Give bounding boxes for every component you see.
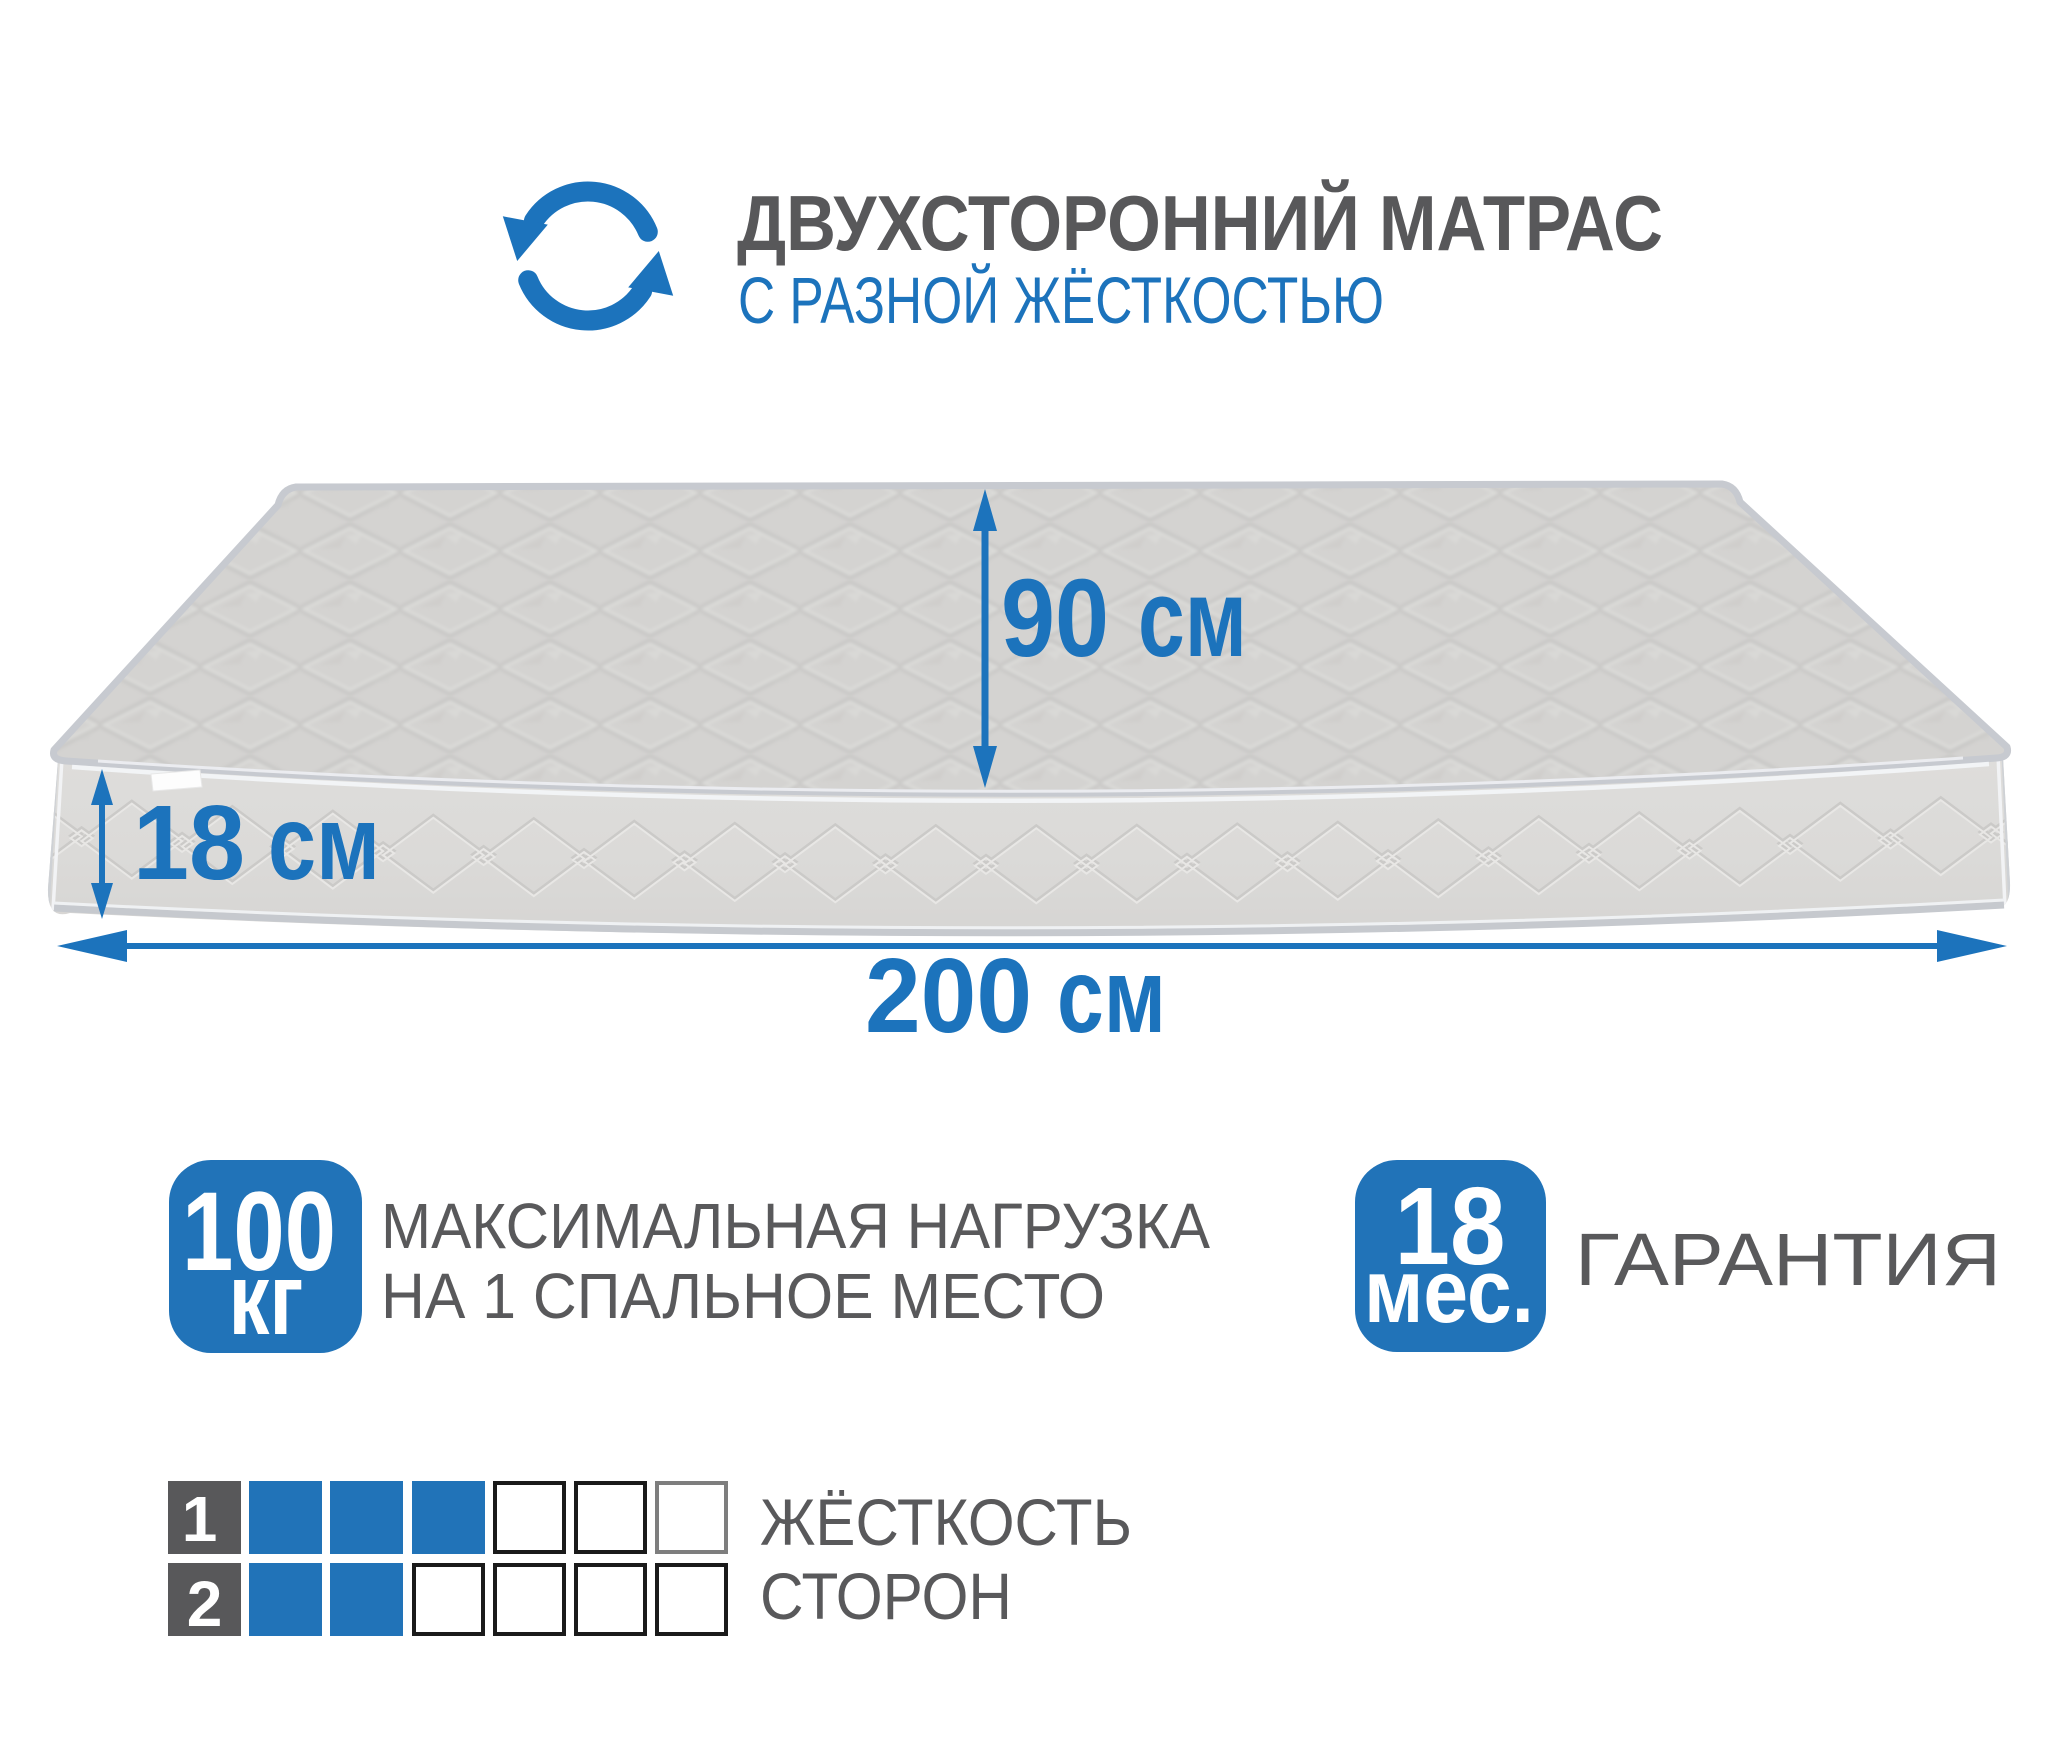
svg-text:МАКСИМАЛЬНАЯ НАГРУЗКА: МАКСИМАЛЬНАЯ НАГРУЗКА (381, 1190, 1210, 1262)
svg-text:90: 90 (1001, 557, 1109, 680)
svg-text:ГАРАНТИЯ: ГАРАНТИЯ (1575, 1218, 2001, 1301)
svg-text:см: см (1138, 557, 1247, 680)
svg-text:ЖЁСТКОСТЬ: ЖЁСТКОСТЬ (760, 1485, 1132, 1559)
svg-text:кг: кг (229, 1242, 304, 1356)
svg-text:1: 1 (182, 1483, 218, 1555)
svg-text:см: см (268, 784, 380, 902)
svg-text:200: 200 (865, 937, 1032, 1055)
svg-text:см: см (1057, 937, 1166, 1055)
svg-text:мес.: мес. (1364, 1242, 1534, 1342)
svg-text:НА 1 СПАЛЬНОЕ МЕСТО: НА 1 СПАЛЬНОЕ МЕСТО (381, 1260, 1105, 1332)
svg-text:СТОРОН: СТОРОН (760, 1559, 1012, 1633)
svg-text:С РАЗНОЙ ЖЁСТКОСТЬЮ: С РАЗНОЙ ЖЁСТКОСТЬЮ (738, 262, 1384, 337)
svg-text:18: 18 (133, 784, 245, 902)
svg-text:2: 2 (187, 1568, 223, 1640)
svg-text:ДВУХСТОРОННИЙ МАТРАС: ДВУХСТОРОННИЙ МАТРАС (737, 179, 1663, 267)
